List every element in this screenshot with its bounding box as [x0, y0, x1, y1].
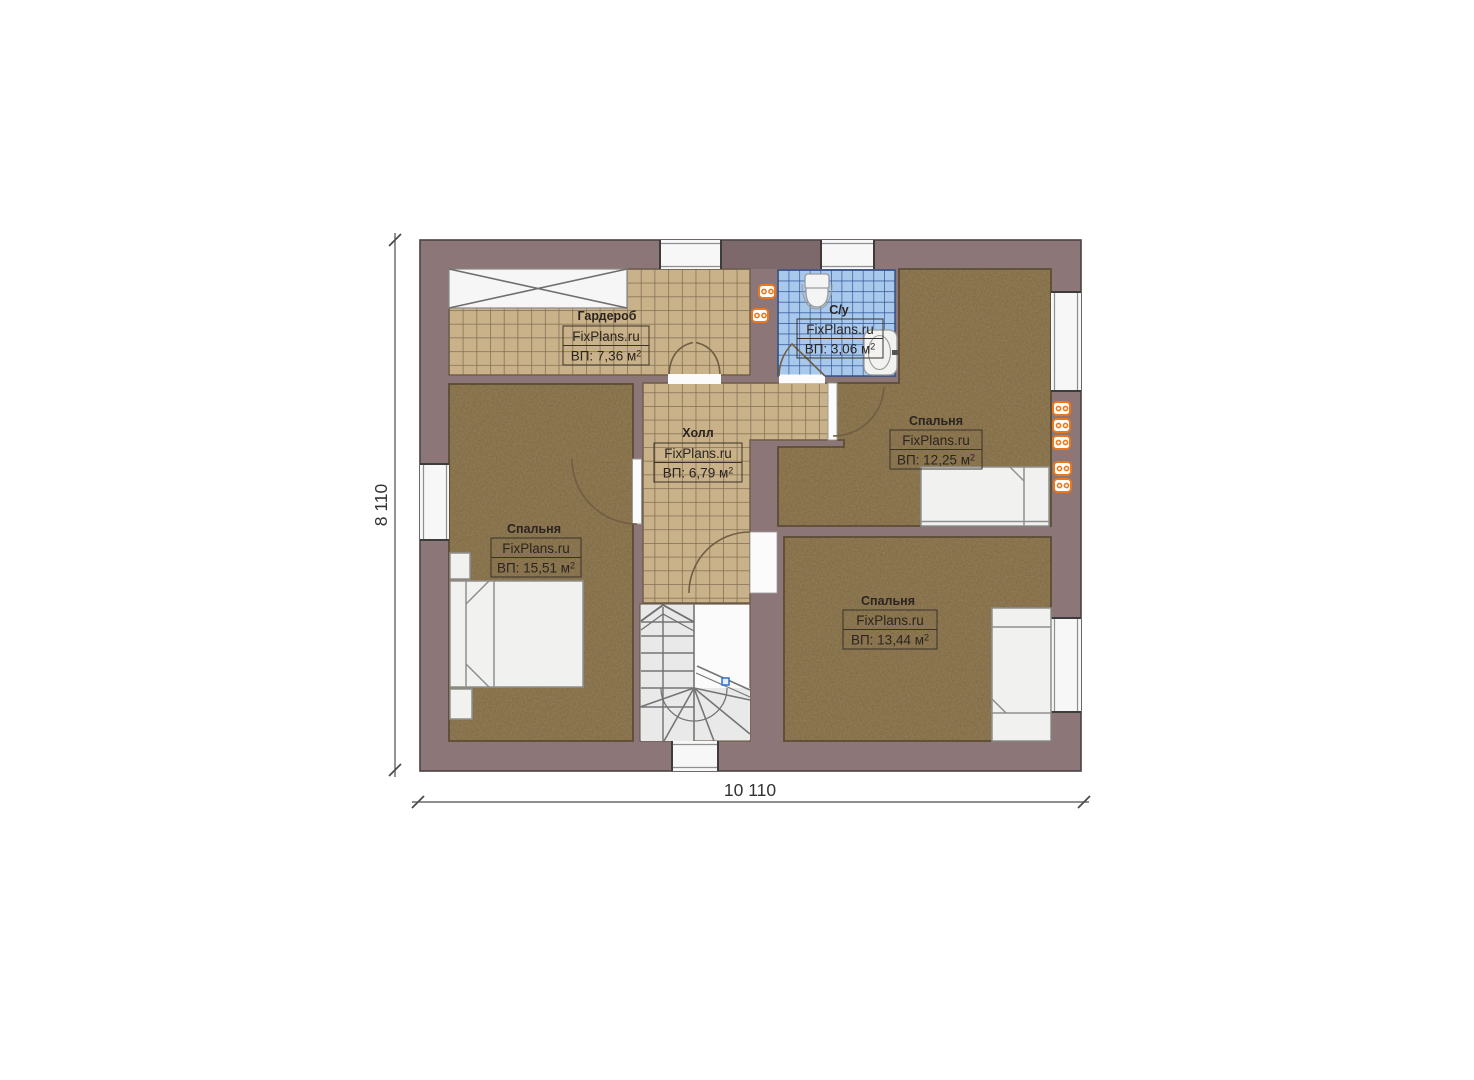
svg-text:ВП: 7,36 м2: ВП: 7,36 м2	[571, 349, 642, 364]
svg-text:Спальня: Спальня	[507, 522, 561, 536]
svg-text:Гардероб: Гардероб	[577, 309, 636, 323]
svg-text:ВП: 12,25 м2: ВП: 12,25 м2	[897, 453, 975, 468]
svg-text:FixPlans.ru: FixPlans.ru	[664, 446, 732, 461]
svg-text:8 110: 8 110	[371, 483, 391, 526]
svg-text:Спальня: Спальня	[909, 414, 963, 428]
svg-text:Спальня: Спальня	[861, 594, 915, 608]
svg-text:FixPlans.ru: FixPlans.ru	[856, 613, 924, 628]
svg-text:FixPlans.ru: FixPlans.ru	[572, 329, 640, 344]
svg-text:ВП: 6,79 м2: ВП: 6,79 м2	[663, 466, 734, 481]
svg-text:Холл: Холл	[682, 426, 713, 440]
svg-text:FixPlans.ru: FixPlans.ru	[806, 322, 874, 337]
svg-text:10 110: 10 110	[724, 780, 776, 800]
svg-text:FixPlans.ru: FixPlans.ru	[902, 433, 970, 448]
svg-text:ВП: 15,51 м2: ВП: 15,51 м2	[497, 561, 575, 576]
svg-text:FixPlans.ru: FixPlans.ru	[502, 541, 570, 556]
svg-text:С/у: С/у	[829, 303, 849, 317]
svg-text:ВП: 3,06 м2: ВП: 3,06 м2	[805, 342, 876, 357]
svg-text:ВП: 13,44 м2: ВП: 13,44 м2	[851, 633, 929, 648]
